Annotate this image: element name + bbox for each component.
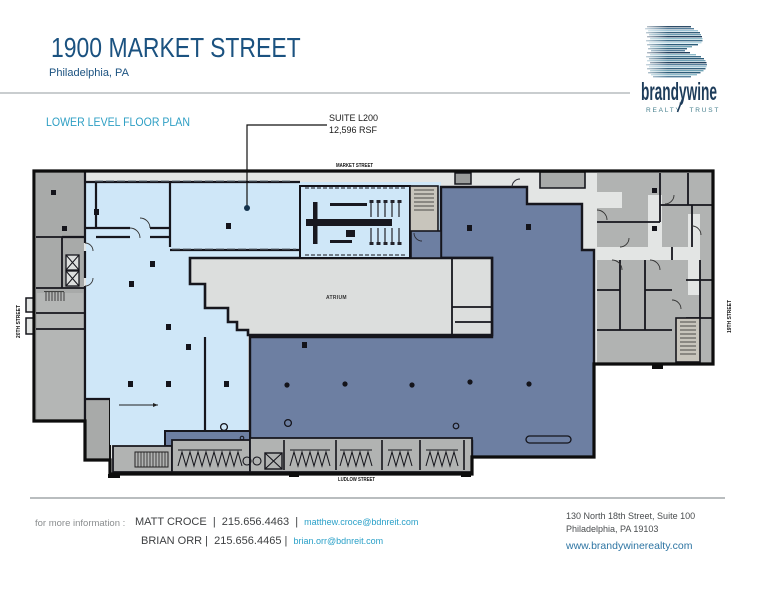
svg-text:LUDLOW STREET: LUDLOW STREET bbox=[338, 477, 375, 483]
svg-text:19TH STREET: 19TH STREET bbox=[727, 300, 733, 333]
svg-text:20TH STREET: 20TH STREET bbox=[16, 305, 22, 338]
svg-text:ATRIUM: ATRIUM bbox=[326, 295, 347, 301]
svg-text:MARKET STREET: MARKET STREET bbox=[336, 163, 373, 169]
